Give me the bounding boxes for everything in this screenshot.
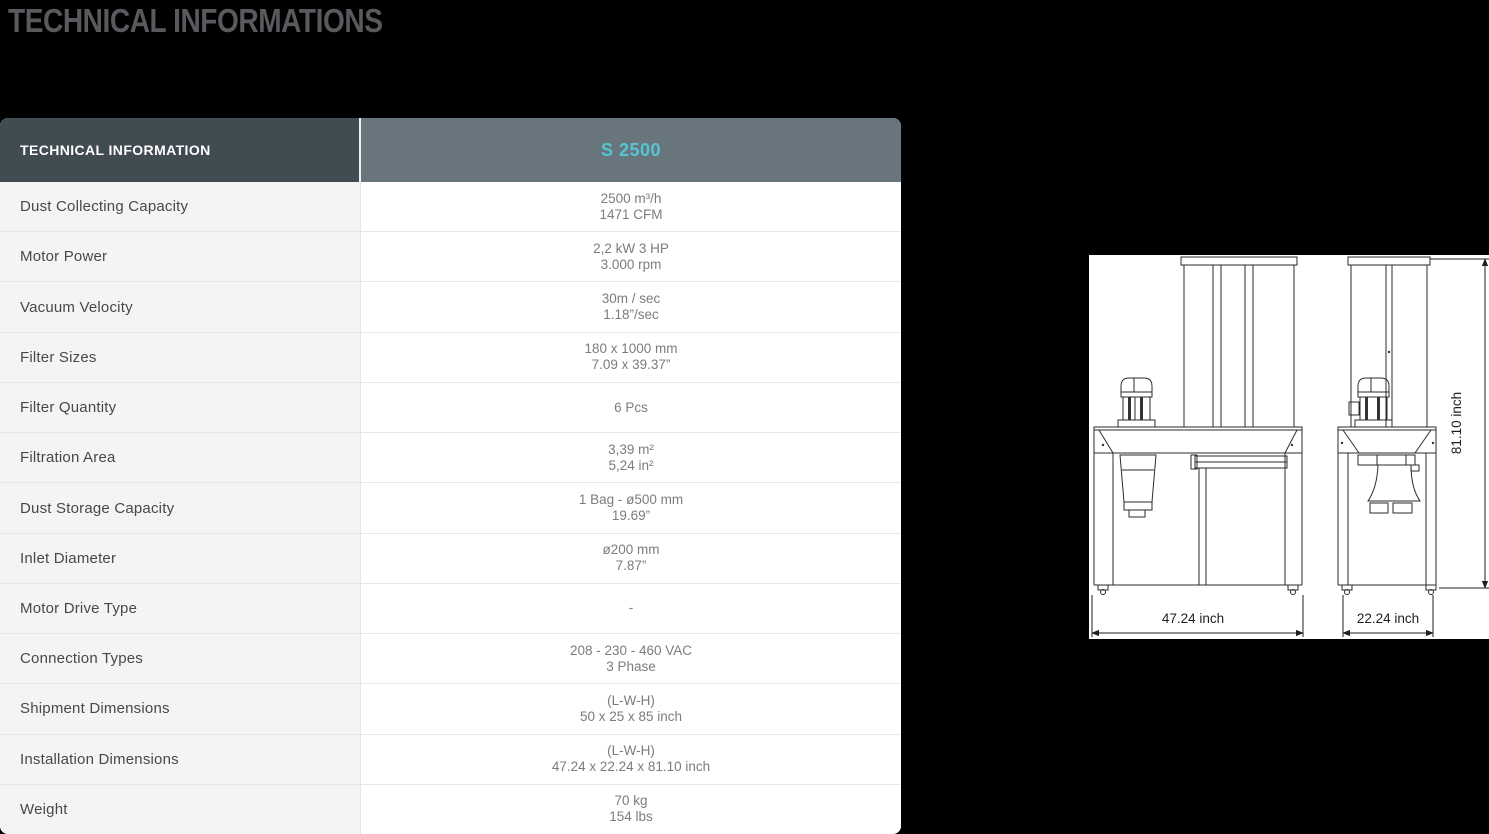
spec-value-line: 70 kg: [614, 793, 647, 809]
spec-row-label: Filter Quantity: [0, 383, 361, 432]
spec-row-value: 30m / sec1.18”/sec: [361, 282, 901, 331]
spec-value-line: 154 lbs: [609, 809, 653, 825]
spec-row-label: Connection Types: [0, 634, 361, 683]
spec-rows: Dust Collecting Capacity2500 m³/h1471 CF…: [0, 182, 901, 834]
spec-row-label: Motor Drive Type: [0, 584, 361, 633]
front-width-dimension: 47.24 inch: [1092, 595, 1303, 637]
spec-row-label: Filtration Area: [0, 433, 361, 482]
spec-row-value: 70 kg154 lbs: [361, 785, 901, 834]
spec-row: Connection Types208 - 230 - 460 VAC3 Pha…: [0, 633, 901, 683]
spec-row-label: Installation Dimensions: [0, 735, 361, 784]
spec-value-line: 208 - 230 - 460 VAC: [570, 643, 692, 659]
spec-row-value: 6 Pcs: [361, 383, 901, 432]
front-view: [1094, 257, 1302, 595]
spec-row: Weight70 kg154 lbs: [0, 784, 901, 834]
spec-row-value: (L-W-H)50 x 25 x 85 inch: [361, 684, 901, 733]
spec-row: Motor Power2,2 kW 3 HP3.000 rpm: [0, 231, 901, 281]
spec-row-value: 208 - 230 - 460 VAC3 Phase: [361, 634, 901, 683]
spec-table: TECHNICAL INFORMATION S 2500 Dust Collec…: [0, 118, 901, 834]
spec-value-line: 1471 CFM: [599, 207, 662, 223]
spec-row-value: 3,39 m²5,24 in²: [361, 433, 901, 482]
spec-value-line: 1.18”/sec: [603, 307, 659, 323]
spec-row-label: Filter Sizes: [0, 333, 361, 382]
spec-value-line: 50 x 25 x 85 inch: [580, 709, 682, 725]
spec-row-label: Vacuum Velocity: [0, 282, 361, 331]
spec-row-value: 2,2 kW 3 HP3.000 rpm: [361, 232, 901, 281]
side-view: [1338, 257, 1436, 595]
spec-value-line: -: [629, 600, 634, 616]
spec-row-value: 2500 m³/h1471 CFM: [361, 182, 901, 231]
height-dimension-label: 81.10 inch: [1449, 392, 1464, 454]
spec-value-line: 7.87”: [616, 558, 647, 574]
spec-row-label: Motor Power: [0, 232, 361, 281]
spec-value-line: 180 x 1000 mm: [584, 341, 677, 357]
spec-value-line: (L-W-H): [607, 693, 655, 709]
spec-row: Inlet Diameterø200 mm7.87”: [0, 533, 901, 583]
spec-value-line: 7.09 x 39.37”: [592, 357, 671, 373]
spec-row: Filtration Area3,39 m²5,24 in²: [0, 432, 901, 482]
spec-row-label: Weight: [0, 785, 361, 834]
page-title: TECHNICAL INFORMATIONS: [8, 2, 383, 40]
model-column-header: S 2500: [361, 118, 901, 182]
technical-drawing: 47.24 inch 22.24 inch 81.10 inch: [1089, 255, 1489, 639]
spec-row-value: (L-W-H)47.24 x 22.24 x 81.10 inch: [361, 735, 901, 784]
spec-value-line: 3.000 rpm: [601, 257, 662, 273]
spec-value-line: 30m / sec: [602, 291, 661, 307]
spec-row-label: Dust Storage Capacity: [0, 483, 361, 532]
spec-value-line: 3,39 m²: [608, 442, 654, 458]
spec-table-header-label: TECHNICAL INFORMATION: [0, 118, 361, 182]
spec-value-line: 5,24 in²: [608, 458, 653, 474]
spec-value-line: 1 Bag - ø500 mm: [579, 492, 683, 508]
spec-row: Shipment Dimensions(L-W-H)50 x 25 x 85 i…: [0, 683, 901, 733]
spec-row: Dust Collecting Capacity2500 m³/h1471 CF…: [0, 182, 901, 231]
spec-value-line: 2,2 kW 3 HP: [593, 241, 669, 257]
spec-row: Motor Drive Type-: [0, 583, 901, 633]
spec-value-line: 3 Phase: [606, 659, 656, 675]
spec-row: Filter Quantity6 Pcs: [0, 382, 901, 432]
spec-value-line: 2500 m³/h: [601, 191, 662, 207]
spec-row-value: -: [361, 584, 901, 633]
spec-row-label: Inlet Diameter: [0, 534, 361, 583]
side-width-dimension: 22.24 inch: [1343, 595, 1433, 637]
spec-value-line: 47.24 x 22.24 x 81.10 inch: [552, 759, 710, 775]
front-width-dimension-label: 47.24 inch: [1162, 611, 1224, 626]
spec-row: Filter Sizes180 x 1000 mm7.09 x 39.37”: [0, 332, 901, 382]
spec-row: Dust Storage Capacity1 Bag - ø500 mm19.6…: [0, 482, 901, 532]
side-width-dimension-label: 22.24 inch: [1357, 611, 1419, 626]
spec-row: Installation Dimensions(L-W-H)47.24 x 22…: [0, 734, 901, 784]
spec-table-header: TECHNICAL INFORMATION S 2500: [0, 118, 901, 182]
height-dimension: 81.10 inch: [1430, 259, 1489, 588]
technical-drawing-svg: 47.24 inch 22.24 inch 81.10 inch: [1089, 255, 1489, 639]
spec-row-value: ø200 mm7.87”: [361, 534, 901, 583]
spec-value-line: ø200 mm: [602, 542, 659, 558]
spec-value-line: 6 Pcs: [614, 400, 648, 416]
spec-row-value: 1 Bag - ø500 mm19.69”: [361, 483, 901, 532]
spec-value-line: 19.69”: [612, 508, 650, 524]
spec-row-label: Shipment Dimensions: [0, 684, 361, 733]
spec-value-line: (L-W-H): [607, 743, 655, 759]
spec-row: Vacuum Velocity30m / sec1.18”/sec: [0, 281, 901, 331]
spec-row-value: 180 x 1000 mm7.09 x 39.37”: [361, 333, 901, 382]
spec-row-label: Dust Collecting Capacity: [0, 182, 361, 231]
